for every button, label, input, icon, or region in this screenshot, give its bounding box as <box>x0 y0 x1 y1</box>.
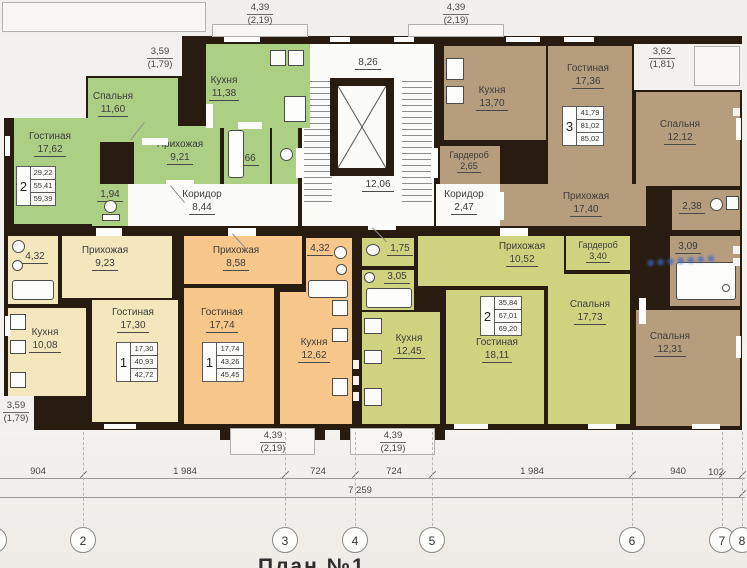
window-icon <box>330 37 350 42</box>
stamp-apt-olive: 2 35,8467,0169,20 <box>480 296 522 336</box>
dimension-line-1 <box>0 478 745 479</box>
floor-plan: 8,26 12,06 Гостиная17,62 Спальня11,60 Ку… <box>0 0 747 568</box>
axis-line <box>355 432 356 526</box>
axis-bubble-6: 6 <box>619 527 645 553</box>
window-icon <box>5 316 10 336</box>
window-icon <box>394 37 414 42</box>
dim-top-right: 3,62(1,81) <box>636 46 688 71</box>
axis-bubble-4: 4 <box>342 527 368 553</box>
label-brown-hall: Прихожая17,40 <box>556 190 616 217</box>
balcony-top-left <box>2 2 206 32</box>
dimension-line-total <box>0 497 745 498</box>
bathtub-icon <box>228 130 244 178</box>
window-icon <box>588 424 616 429</box>
axis-line <box>432 432 433 526</box>
axis-bubble-3: 3 <box>272 527 298 553</box>
toilet-icon <box>12 240 25 253</box>
dim-top-mid2: 4,39(2,19) <box>424 2 488 27</box>
stove-icon <box>332 378 348 396</box>
sink-icon <box>332 328 348 342</box>
stove-icon <box>364 388 382 406</box>
label-cream-living: Гостиная17,30 <box>104 306 162 333</box>
window-icon <box>736 336 741 358</box>
stamp-apt-orange: 1 17,7443,2645,45 <box>202 342 244 382</box>
washer-icon <box>726 196 739 210</box>
stairwell-lower-area: 12,06 <box>354 178 402 192</box>
vent-icon <box>733 258 740 266</box>
window-icon <box>692 424 720 429</box>
axis-line <box>742 432 743 526</box>
sink-icon <box>10 340 26 354</box>
label-brown-bedroom1: Спальня12,12 <box>650 118 710 145</box>
sink-icon <box>364 350 382 364</box>
toilet-icon <box>710 198 723 211</box>
stove-icon <box>270 50 286 66</box>
dim-segment-724b: 724 <box>386 466 402 477</box>
label-olive-wardrobe: Гардероб3,40 <box>566 240 630 263</box>
counter-icon <box>364 318 382 334</box>
label-orange-bath: 4,32 <box>304 242 336 256</box>
room-brown-bedroom2 <box>636 310 740 426</box>
label-olive-living: Гостиная18,11 <box>468 336 526 363</box>
stamp-apt-green: 2 29,2255,4159,39 <box>16 166 56 206</box>
exterior-cut-topleft2 <box>0 36 86 118</box>
label-cream-kitchen: Кухня10,08 <box>20 326 70 353</box>
axis-line <box>632 432 633 526</box>
door-opening <box>500 228 528 236</box>
dim-segment-1984a: 1 984 <box>173 466 197 477</box>
label-brown-kitchen: Кухня13,70 <box>464 84 520 111</box>
sink-icon <box>12 260 23 271</box>
label-brown-bedroom2: Спальня12,31 <box>640 330 700 357</box>
vent-icon <box>733 108 740 116</box>
axis-bubble-1: 1 <box>0 527 7 553</box>
balcony-divider <box>435 428 445 440</box>
window-icon <box>5 136 10 156</box>
stove-icon <box>10 372 26 388</box>
toilet-icon <box>334 246 347 259</box>
sink-icon <box>336 264 347 275</box>
toilet-icon <box>104 200 117 213</box>
label-olive-hall: Прихожая10,52 <box>492 240 552 267</box>
window-icon <box>564 37 594 42</box>
counter-icon <box>10 314 26 330</box>
door-opening <box>296 148 303 178</box>
dim-segment-940: 940 <box>670 466 686 477</box>
label-orange-living: Гостиная17,74 <box>194 306 250 333</box>
door-opening <box>238 122 262 129</box>
vent-icon <box>353 376 359 385</box>
door-opening <box>431 148 438 178</box>
vent-icon <box>733 246 740 254</box>
counter-icon <box>284 96 306 122</box>
counter-icon <box>446 58 464 80</box>
axis-line <box>285 432 286 526</box>
axis-bubble-8: 8 <box>729 527 747 553</box>
axis-bubble-5: 5 <box>419 527 445 553</box>
label-olive-kitchen: Кухня12,45 <box>382 332 436 359</box>
label-brown-living: Гостиная17,36 <box>558 62 618 89</box>
dim-segment-1984b: 1 984 <box>520 466 544 477</box>
window-icon <box>104 424 136 429</box>
bathtub-icon <box>366 288 412 308</box>
balcony-divider <box>220 428 230 440</box>
label-orange-hall: Прихожая8,58 <box>208 244 264 271</box>
stamp-apt-brown: 3 41,7981,0285,02 <box>562 106 604 146</box>
vent-icon <box>353 360 359 369</box>
label-green-living: Гостиная17,62 <box>18 130 82 157</box>
label-corridor-left: Коридор8,44 <box>172 188 232 215</box>
dim-bottom-mid1: 4,39(2,19) <box>232 430 314 455</box>
door-opening <box>497 192 504 220</box>
dim-segment-724a: 724 <box>310 466 326 477</box>
label-olive-bath: 3,05 <box>382 270 412 284</box>
label-cream-hall: Прихожая9,23 <box>76 244 134 271</box>
toilet-icon <box>366 244 380 256</box>
label-green-kitchen: Кухня11,38 <box>196 74 252 101</box>
sink-icon <box>288 50 304 66</box>
door-opening <box>96 228 122 236</box>
elevator-x-icon <box>338 86 386 168</box>
axis-bubble-2: 2 <box>70 527 96 553</box>
door-opening <box>639 298 646 324</box>
dim-bottom-left: 3,59(1,79) <box>0 400 32 425</box>
label-olive-wc: 1,75 <box>386 242 414 256</box>
balcony-top-right <box>694 46 740 86</box>
axis-line <box>83 432 84 526</box>
window-icon <box>454 424 488 429</box>
stairs-right <box>402 76 432 206</box>
door-opening <box>142 138 168 145</box>
label-corridor-right: Коридор2,47 <box>434 188 494 215</box>
sink-icon <box>364 272 375 283</box>
bathtub-icon <box>308 280 348 298</box>
counter-icon <box>332 300 348 316</box>
bathtub-icon <box>12 280 54 300</box>
room-olive-bedroom <box>548 274 630 424</box>
stove-icon <box>446 86 464 104</box>
label-green-bedroom: Спальня11,60 <box>82 90 144 117</box>
plan-caption: План №1 <box>258 555 366 568</box>
dim-top-left: 3,59(1,79) <box>130 46 190 71</box>
label-cream-bath: 4,32 <box>18 250 52 264</box>
stamp-apt-cream: 1 17,3040,9342,72 <box>116 342 158 382</box>
drain-icon <box>722 284 730 292</box>
label-brown-wardrobe: Гардероб2,65 <box>438 150 500 173</box>
vent-icon <box>353 392 359 401</box>
toilet-tank-icon <box>102 214 120 221</box>
toilet-icon <box>280 148 293 161</box>
dim-top-mid1: 4,39(2,19) <box>228 2 292 27</box>
label-brown-bath1: 2,38 <box>676 200 708 214</box>
dim-bottom-mid2: 4,39(2,19) <box>352 430 434 455</box>
axis-line <box>722 432 723 526</box>
stairwell-upper-area: 8,26 <box>348 56 388 70</box>
window-icon <box>506 37 540 42</box>
door-opening <box>206 104 213 128</box>
window-icon <box>224 37 260 42</box>
dim-total: 7 259 <box>348 485 372 496</box>
balcony-divider <box>340 428 350 440</box>
window-icon <box>736 118 741 140</box>
dim-segment-904: 904 <box>30 466 46 477</box>
label-olive-bedroom: Спальня17,73 <box>560 298 620 325</box>
balcony-divider <box>315 428 325 440</box>
